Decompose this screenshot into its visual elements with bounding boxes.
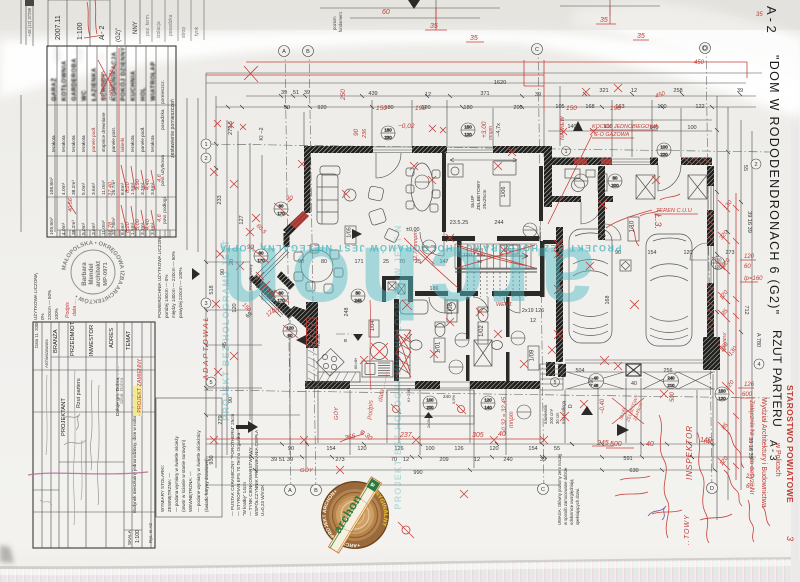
svg-text:930: 930 — [209, 455, 215, 464]
svg-text:ADAPTOWAŁ: ADAPTOWAŁ — [201, 315, 210, 381]
svg-text:Rzut parteru: Rzut parteru — [76, 378, 82, 408]
svg-text:KI −2: KI −2 — [259, 127, 265, 140]
svg-text:100: 100 — [427, 398, 435, 403]
svg-text:archon: archon — [213, 226, 594, 338]
svg-text:3.6m²: 3.6m² — [91, 222, 97, 235]
svg-text:4,40: 4,40 — [145, 178, 151, 190]
svg-text:— STYROPIAN EPS 70 Termo: — STYROPIAN EPS 70 Termo Organika — [236, 432, 241, 516]
svg-text:Podpis: Podpis — [367, 399, 375, 420]
svg-text:+45: +45 — [702, 439, 714, 446]
svg-text:C: C — [541, 487, 545, 493]
svg-text:712: 712 — [743, 305, 749, 314]
svg-text:4,6: 4,6 — [157, 173, 163, 182]
svg-text:55: 55 — [554, 446, 560, 452]
svg-text:245: 245 — [354, 298, 362, 303]
svg-text:B: B — [306, 49, 310, 55]
svg-text:11.0m²: 11.0m² — [101, 180, 107, 195]
svg-text:terakota: terakota — [71, 135, 76, 152]
svg-text:spełniających drzwi.: spełniających drzwi. — [575, 488, 580, 525]
svg-text:2007: 2007 — [55, 46, 62, 62]
svg-text:154: 154 — [648, 250, 657, 256]
svg-text:(otwór w ścianie w stanie: (otwór w ścianie w stanie surowym) — [181, 439, 186, 512]
svg-text:Data 11. 2008: Data 11. 2008 — [34, 321, 39, 348]
svg-text:4.0m²: 4.0m² — [61, 182, 67, 195]
svg-text:architekt: architekt — [95, 261, 102, 287]
svg-text:55: 55 — [742, 165, 748, 171]
svg-text:— PUSTAK CERAMICZNY "POROTH: — PUSTAK CERAMICZNY "POROTHERM" 25cm — [230, 413, 235, 516]
svg-text:"DOM W RODODENDRONACH 6 (G2)": "DOM W RODODENDRONACH 6 (G2)" — [767, 55, 781, 315]
svg-text:198: 198 — [610, 105, 621, 112]
svg-text:23.5.25: 23.5.25 — [450, 220, 469, 226]
svg-text:90: 90 — [353, 128, 360, 136]
svg-text:fundament.: fundament. — [338, 11, 343, 32]
svg-text:90: 90 — [284, 105, 290, 111]
svg-text:SŁUP: SŁUP — [470, 195, 476, 208]
svg-text:Mendel: Mendel — [88, 263, 95, 285]
svg-text:terakota: terakota — [150, 135, 155, 152]
svg-text:GÓY: GÓY — [300, 467, 314, 474]
svg-text:630: 630 — [629, 468, 638, 474]
svg-text:C-O GAZOWA: C-O GAZOWA — [594, 132, 630, 138]
svg-text:108.8m²: 108.8m² — [49, 177, 55, 195]
svg-text:KOTŁOWNIA: KOTŁOWNIA — [62, 60, 68, 101]
svg-text:WIATROŁAP: WIATROŁAP — [151, 62, 157, 101]
svg-text:PROJEKT BEZ HOLOGRAMU I HOLOGR: PROJEKT BEZ HOLOGRAMU I HOLOGRAMÓW JEST … — [218, 243, 621, 254]
svg-text:120: 120 — [684, 250, 693, 256]
svg-text:POKÓJ DZIENNY: POKÓJ DZIENNY — [119, 47, 127, 101]
svg-text:A: A — [288, 488, 292, 494]
svg-text:120: 120 — [357, 446, 366, 452]
svg-text:12: 12 — [425, 92, 431, 98]
svg-text:168: 168 — [585, 104, 594, 110]
svg-text:PROJEKT BEZ HOLOGRAMU JEST: PROJEKT BEZ HOLOGRAMU JEST — [221, 239, 231, 421]
svg-text:KOCIOŁ JEDNOBIEGOWA: KOCIOŁ JEDNOBIEGOWA — [592, 124, 658, 130]
svg-text:154: 154 — [528, 446, 537, 452]
svg-text:371: 371 — [480, 91, 489, 97]
svg-text:504: 504 — [576, 368, 585, 374]
svg-text:1:10: 1:10 — [77, 48, 84, 62]
svg-text:40: 40 — [646, 441, 654, 448]
svg-text:12: 12 — [631, 88, 637, 94]
svg-text:mnpm: mnpm — [488, 126, 494, 140]
svg-text:WEWNĘTRZNA: —: WEWNĘTRZNA: — — [188, 471, 193, 512]
svg-text:terakota: terakota — [61, 135, 66, 152]
svg-text:180: 180 — [463, 105, 472, 111]
svg-text:WC: WC — [82, 90, 88, 101]
svg-text:920: 920 — [317, 105, 326, 111]
svg-text:pomieszcz.: pomieszcz. — [160, 80, 166, 104]
svg-text:240: 240 — [503, 457, 512, 463]
svg-text:1: 1 — [565, 149, 568, 155]
svg-text:321: 321 — [599, 88, 608, 94]
svg-text:4,40: 4,40 — [145, 218, 151, 230]
svg-text:11.0m²: 11.0m² — [101, 220, 107, 235]
svg-text:GARDEROBA: GARDEROBA — [72, 58, 78, 101]
svg-text:poziom: poziom — [332, 16, 337, 30]
svg-text:dział. Dobra: dział. Dobra — [119, 378, 125, 404]
svg-text:39: 39 — [737, 88, 743, 94]
svg-text:80: 80 — [356, 291, 361, 296]
svg-text:(światło futryny drzwiowej): (światło futryny drzwiowej) — [204, 458, 209, 512]
svg-text:1/10: 1/10 — [630, 220, 636, 232]
svg-text:35: 35 — [600, 17, 608, 24]
svg-text:−0,40: −0,40 — [600, 398, 606, 414]
svg-text:1:100: 1:100 — [77, 22, 84, 40]
svg-text:500: 500 — [670, 391, 676, 402]
svg-text:POWIERZCHNIA UŻYTKOWA LICZON: POWIERZCHNIA UŻYTKOWA LICZON — [156, 238, 162, 318]
svg-text:między 140cm — 220cm — 50: między 140cm — 220cm — 50% — [171, 251, 176, 318]
svg-text:panele podł.: panele podł. — [91, 127, 96, 152]
svg-text:120: 120 — [484, 398, 492, 403]
svg-text:UWAGA: Główny poziomy zero: UWAGA: Główny poziomy zero noczęj — [557, 454, 562, 525]
svg-text:122: 122 — [695, 104, 704, 110]
svg-text:39: 39 — [281, 90, 287, 96]
svg-text:0,5%: 0,5% — [451, 394, 456, 404]
svg-text:A 780: A 780 — [755, 333, 761, 347]
svg-text:D: D — [703, 46, 707, 52]
svg-text:MP-0971: MP-0971 — [103, 261, 109, 285]
svg-text:35: 35 — [470, 35, 478, 42]
svg-text:236: 236 — [362, 128, 368, 139]
svg-text:305: 305 — [472, 432, 484, 439]
svg-text:panele post.: panele post. — [111, 127, 116, 152]
svg-text:nad podłogą: nad podłogą — [561, 400, 566, 424]
svg-text:90: 90 — [288, 446, 294, 452]
svg-text:180: 180 — [384, 128, 392, 133]
svg-text:4,6: 4,6 — [157, 213, 163, 222]
svg-text:ADRES: ADRES — [109, 328, 115, 348]
svg-text:WSPÓŁCZYNNIK PRZENIKANIA CIE: WSPÓŁCZYNNIK PRZENIKANIA CIEPŁA — [253, 429, 259, 516]
svg-text:439: 439 — [368, 91, 377, 97]
svg-text:12: 12 — [403, 457, 409, 463]
svg-text:100: 100 — [657, 104, 666, 110]
svg-text:1620: 1620 — [494, 80, 506, 86]
svg-text:126: 126 — [454, 446, 463, 452]
svg-text:220: 220 — [660, 152, 668, 157]
svg-text:233: 233 — [217, 195, 223, 204]
svg-text:150: 150 — [715, 258, 723, 263]
svg-text:200 cm²: 200 cm² — [549, 408, 554, 424]
svg-text:450: 450 — [694, 60, 705, 66]
svg-text:80: 80 — [613, 176, 618, 181]
svg-text:A - 2: A - 2 — [99, 25, 106, 40]
svg-text:51: 51 — [279, 457, 285, 463]
svg-text:150: 150 — [464, 125, 472, 130]
svg-text:- PROJEKT ZAMIENNY: - PROJEKT ZAMIENNY — [137, 358, 143, 416]
svg-text:198: 198 — [415, 105, 426, 112]
svg-text:— podana wymiary w świetle: — podana wymiary w świetle ościeży — [174, 435, 179, 512]
svg-text:3: 3 — [785, 536, 795, 541]
svg-text:38.2m²: 38.2m² — [71, 220, 77, 235]
svg-text:terakota: terakota — [51, 135, 56, 152]
svg-text:591: 591 — [623, 456, 632, 462]
svg-text:w sposób zamocowane dobrze: w sposób zamocowane dobrze — [563, 467, 568, 525]
svg-text:600: 600 — [742, 392, 753, 398]
svg-text:KI−2 80: KI−2 80 — [406, 387, 411, 402]
svg-text:273: 273 — [726, 250, 735, 256]
svg-text:stopnice drewniane: stopnice drewniane — [101, 112, 106, 152]
svg-text:2007.11: 2007.11 — [55, 15, 62, 40]
svg-text:3.6m²: 3.6m² — [91, 182, 97, 195]
svg-text:30 cm: 30 cm — [555, 412, 560, 424]
svg-text:37,40: 37,40 — [108, 181, 114, 196]
svg-text:Archiwizowana: Archiwizowana — [44, 339, 49, 368]
svg-text:80=6H: 80=6H — [354, 357, 358, 369]
svg-text:strop: strop — [181, 27, 187, 38]
svg-text:0%: 0% — [40, 313, 45, 320]
svg-text:TEMAT: TEMAT — [126, 330, 132, 350]
svg-text:Wydział Architektury i Budowni: Wydział Architektury i Budownictwa — [760, 398, 767, 508]
svg-text:35: 35 — [756, 12, 763, 18]
svg-text:5: 5 — [554, 380, 557, 386]
svg-text:−4,7x: −4,7x — [496, 123, 502, 137]
svg-text:BRANŻA: BRANŻA — [52, 329, 59, 353]
svg-text:120: 120 — [718, 396, 726, 401]
svg-text:1:100: 1:100 — [135, 530, 141, 543]
svg-text:237: 237 — [399, 432, 413, 439]
svg-text:KUCHNIA: KUCHNIA — [131, 70, 137, 101]
svg-text:109.9m²: 109.9m² — [49, 217, 55, 235]
svg-text:39: 39 — [287, 457, 293, 463]
svg-text:90: 90 — [247, 245, 254, 251]
svg-text:A: A — [282, 49, 286, 55]
svg-text:terakota: terakota — [81, 135, 86, 152]
svg-text:(G2)": (G2)" — [116, 28, 122, 42]
svg-text:lakierki: lakierki — [120, 138, 125, 152]
svg-text:WENT.: WENT. — [496, 302, 513, 308]
svg-text:100: 100 — [660, 145, 668, 150]
svg-text:— TYNK CIENKOWARSTWOWY: — TYNK CIENKOWARSTWOWY — [248, 447, 253, 516]
svg-text:35: 35 — [430, 23, 438, 30]
svg-text:39 16 39: 39 16 39 — [746, 211, 752, 233]
svg-text:1: 1 — [204, 142, 207, 148]
svg-text:Ip=160: Ip=160 — [744, 276, 763, 282]
svg-text:240: 240 — [443, 394, 451, 399]
svg-text:— podane wymiary w świetle: — podane wymiary w świetle ościeżnicy — [196, 430, 201, 512]
svg-text:3: 3 — [204, 301, 207, 307]
svg-text:−0,32 = 32,45: −0,32 = 32,45 — [502, 396, 508, 434]
svg-text:B: B — [314, 488, 318, 494]
svg-text:9,90: 9,90 — [135, 178, 141, 190]
svg-text:powyżej 220cm — 100%: powyżej 220cm — 100% — [178, 267, 183, 318]
svg-text:39: 39 — [540, 457, 546, 463]
svg-text:−0,02: −0,02 — [398, 123, 415, 130]
svg-text:140: 140 — [484, 405, 492, 410]
svg-text:120: 120 — [464, 132, 472, 137]
svg-text:PROJEKT BEZ HOLOGRAMU I HOLOGR: PROJEKT BEZ HOLOGRAMU I HOLOGRAMÓW JEST … — [392, 224, 403, 509]
svg-text:data ....: data .... — [72, 299, 78, 316]
svg-text:INSPEKTOR: INSPEKTOR — [685, 425, 694, 480]
svg-text:poz. term.: poz. term. — [145, 14, 151, 36]
svg-text:poniżej 140cm — 0%: poniżej 140cm — 0% — [164, 275, 169, 318]
svg-text:60: 60 — [382, 9, 390, 16]
svg-text:GÓY: GÓY — [333, 406, 340, 420]
svg-text:39: 39 — [271, 457, 277, 463]
svg-text:120: 120 — [286, 326, 294, 331]
svg-text:Barbara: Barbara — [81, 262, 88, 286]
svg-text:KOTŁOWNIA: KOTŁOWNIA — [100, 71, 106, 100]
svg-text:w Policach: w Policach — [774, 442, 781, 477]
svg-text:1/06: 1/06 — [501, 187, 507, 198]
svg-text:150: 150 — [376, 105, 387, 112]
svg-text:4: 4 — [757, 362, 760, 368]
svg-text:500: 500 — [610, 441, 622, 448]
svg-text:+3,00: +3,00 — [481, 121, 488, 138]
svg-text:ZEWNĘTRZNA: —: ZEWNĘTRZNA: — — [167, 473, 172, 512]
svg-text:mnpm: mnpm — [509, 411, 515, 428]
svg-text:127: 127 — [239, 215, 245, 224]
svg-text:tynk: tynk — [194, 26, 200, 36]
svg-text:zestawienie pomieszczeń: zestawienie pomieszczeń — [170, 99, 176, 158]
svg-text:209: 209 — [439, 457, 448, 463]
svg-text:5.0m²: 5.0m² — [81, 182, 87, 195]
svg-text:U=0,23 W/m2K: U=0,23 W/m2K — [260, 484, 265, 516]
svg-text:60: 60 — [744, 264, 751, 270]
svg-text:2: 2 — [754, 162, 757, 168]
svg-text:990: 990 — [413, 470, 422, 476]
svg-text:120: 120 — [489, 446, 498, 452]
svg-text:INWESTOR: INWESTOR — [89, 325, 95, 356]
svg-text:PRZEDMIOT: PRZEDMIOT — [70, 321, 76, 356]
svg-text:5,00: 5,00 — [135, 218, 141, 230]
svg-text:nawiewnik: nawiewnik — [543, 404, 548, 424]
svg-text:244: 244 — [494, 220, 503, 226]
svg-text:1/09: 1/09 — [530, 349, 536, 361]
svg-text:odsłonnice uwzględniają: odsłonnice uwzględniają — [569, 479, 574, 525]
svg-text:210: 210 — [668, 383, 676, 388]
svg-text:220cm — 50%: 220cm — 50% — [47, 290, 52, 320]
svg-text:STAROSTWO POWIATOWE: STAROSTWO POWIATOWE — [785, 385, 795, 503]
svg-text:2x15x20: 2x15x20 — [427, 414, 431, 428]
svg-text:RZUT PARTERU: RZUT PARTERU — [770, 330, 784, 427]
svg-text:12: 12 — [474, 457, 480, 463]
svg-text:200: 200 — [427, 405, 435, 410]
svg-text:C: C — [535, 47, 539, 53]
svg-text:Załącznik Nr ....... do decyzj: Załącznik Nr ....... do decyzji Nr — [748, 400, 755, 495]
svg-text:25x25cm: 25x25cm — [482, 190, 488, 209]
svg-text:126: 126 — [744, 382, 755, 388]
svg-text:100%: 100% — [54, 308, 59, 320]
svg-text:35: 35 — [637, 33, 645, 40]
svg-text:NAWIEW: NAWIEW — [560, 116, 566, 140]
svg-text:A -: A - — [99, 51, 106, 60]
svg-text:100: 100 — [425, 446, 434, 452]
svg-text:NAWIEW: NAWIEW — [722, 332, 727, 352]
svg-text:60: 60 — [288, 333, 293, 338]
svg-text:273: 273 — [335, 457, 344, 463]
svg-text:D: D — [710, 486, 714, 492]
svg-text:40: 40 — [631, 381, 637, 387]
svg-text:51: 51 — [293, 90, 299, 96]
svg-text:100: 100 — [687, 125, 696, 131]
svg-text:230: 230 — [384, 135, 392, 140]
svg-text:150: 150 — [718, 389, 726, 394]
svg-text:A - 2: A - 2 — [764, 6, 779, 33]
svg-text:240: 240 — [668, 376, 676, 381]
svg-text:168: 168 — [605, 296, 611, 305]
svg-text:258: 258 — [673, 88, 682, 94]
svg-text:39: 39 — [304, 90, 310, 96]
svg-text:ŻELBETOWY: ŻELBETOWY — [475, 180, 482, 210]
svg-text:..TOWY: ..TOWY — [684, 514, 691, 545]
svg-text:105: 105 — [555, 104, 564, 110]
svg-text:154: 154 — [326, 446, 335, 452]
svg-text:Podpis: Podpis — [65, 302, 71, 318]
svg-text:120: 120 — [744, 254, 755, 260]
svg-text:200: 200 — [513, 105, 522, 111]
svg-text:HOL: HOL — [141, 87, 147, 101]
svg-text:5.0m²: 5.0m² — [81, 222, 87, 235]
svg-text:"W kratkę" 14cm: "W kratkę" 14cm — [242, 482, 247, 516]
svg-text:4.0m²: 4.0m² — [61, 222, 67, 235]
svg-text:GARAŻ: GARAŻ — [51, 78, 58, 101]
svg-text:posadzka: posadzka — [160, 109, 166, 130]
svg-text:2: 2 — [204, 156, 207, 162]
svg-text:Ł.3.: Ł.3. — [653, 214, 663, 229]
svg-text:39: 39 — [535, 92, 541, 98]
svg-text:ŁAZIENKA: ŁAZIENKA — [92, 67, 98, 101]
svg-text:D: D — [568, 404, 574, 408]
svg-text:panele podł.: panele podł. — [140, 127, 145, 152]
svg-text:38.2m²: 38.2m² — [71, 180, 77, 195]
svg-text:UŻYTKOWA LICZONĄ: UŻYTKOWA LICZONĄ — [32, 272, 38, 320]
svg-text:terakota: terakota — [130, 135, 135, 152]
svg-text:NNY: NNY — [133, 21, 139, 34]
svg-text:256: 256 — [664, 368, 673, 374]
svg-text:250: 250 — [340, 89, 347, 101]
svg-text:140: 140 — [568, 124, 577, 130]
svg-text:posadzka: posadzka — [168, 14, 174, 36]
svg-text:izolacja: izolacja — [156, 21, 162, 38]
svg-text:WYMIARY STOLARKI:: WYMIARY STOLARKI: — [160, 465, 165, 512]
svg-text:200: 200 — [611, 183, 619, 188]
svg-text:150: 150 — [566, 105, 577, 112]
svg-text:90: 90 — [286, 196, 293, 202]
svg-text:Rys. nr A3: Rys. nr A3 — [148, 523, 153, 543]
svg-text:+48 (12) 37299: +48 (12) 37299 — [27, 7, 32, 36]
svg-text:SKALA: SKALA — [127, 529, 132, 545]
svg-text:490: 490 — [589, 378, 595, 387]
svg-text:31,78: 31,78 — [108, 221, 114, 236]
